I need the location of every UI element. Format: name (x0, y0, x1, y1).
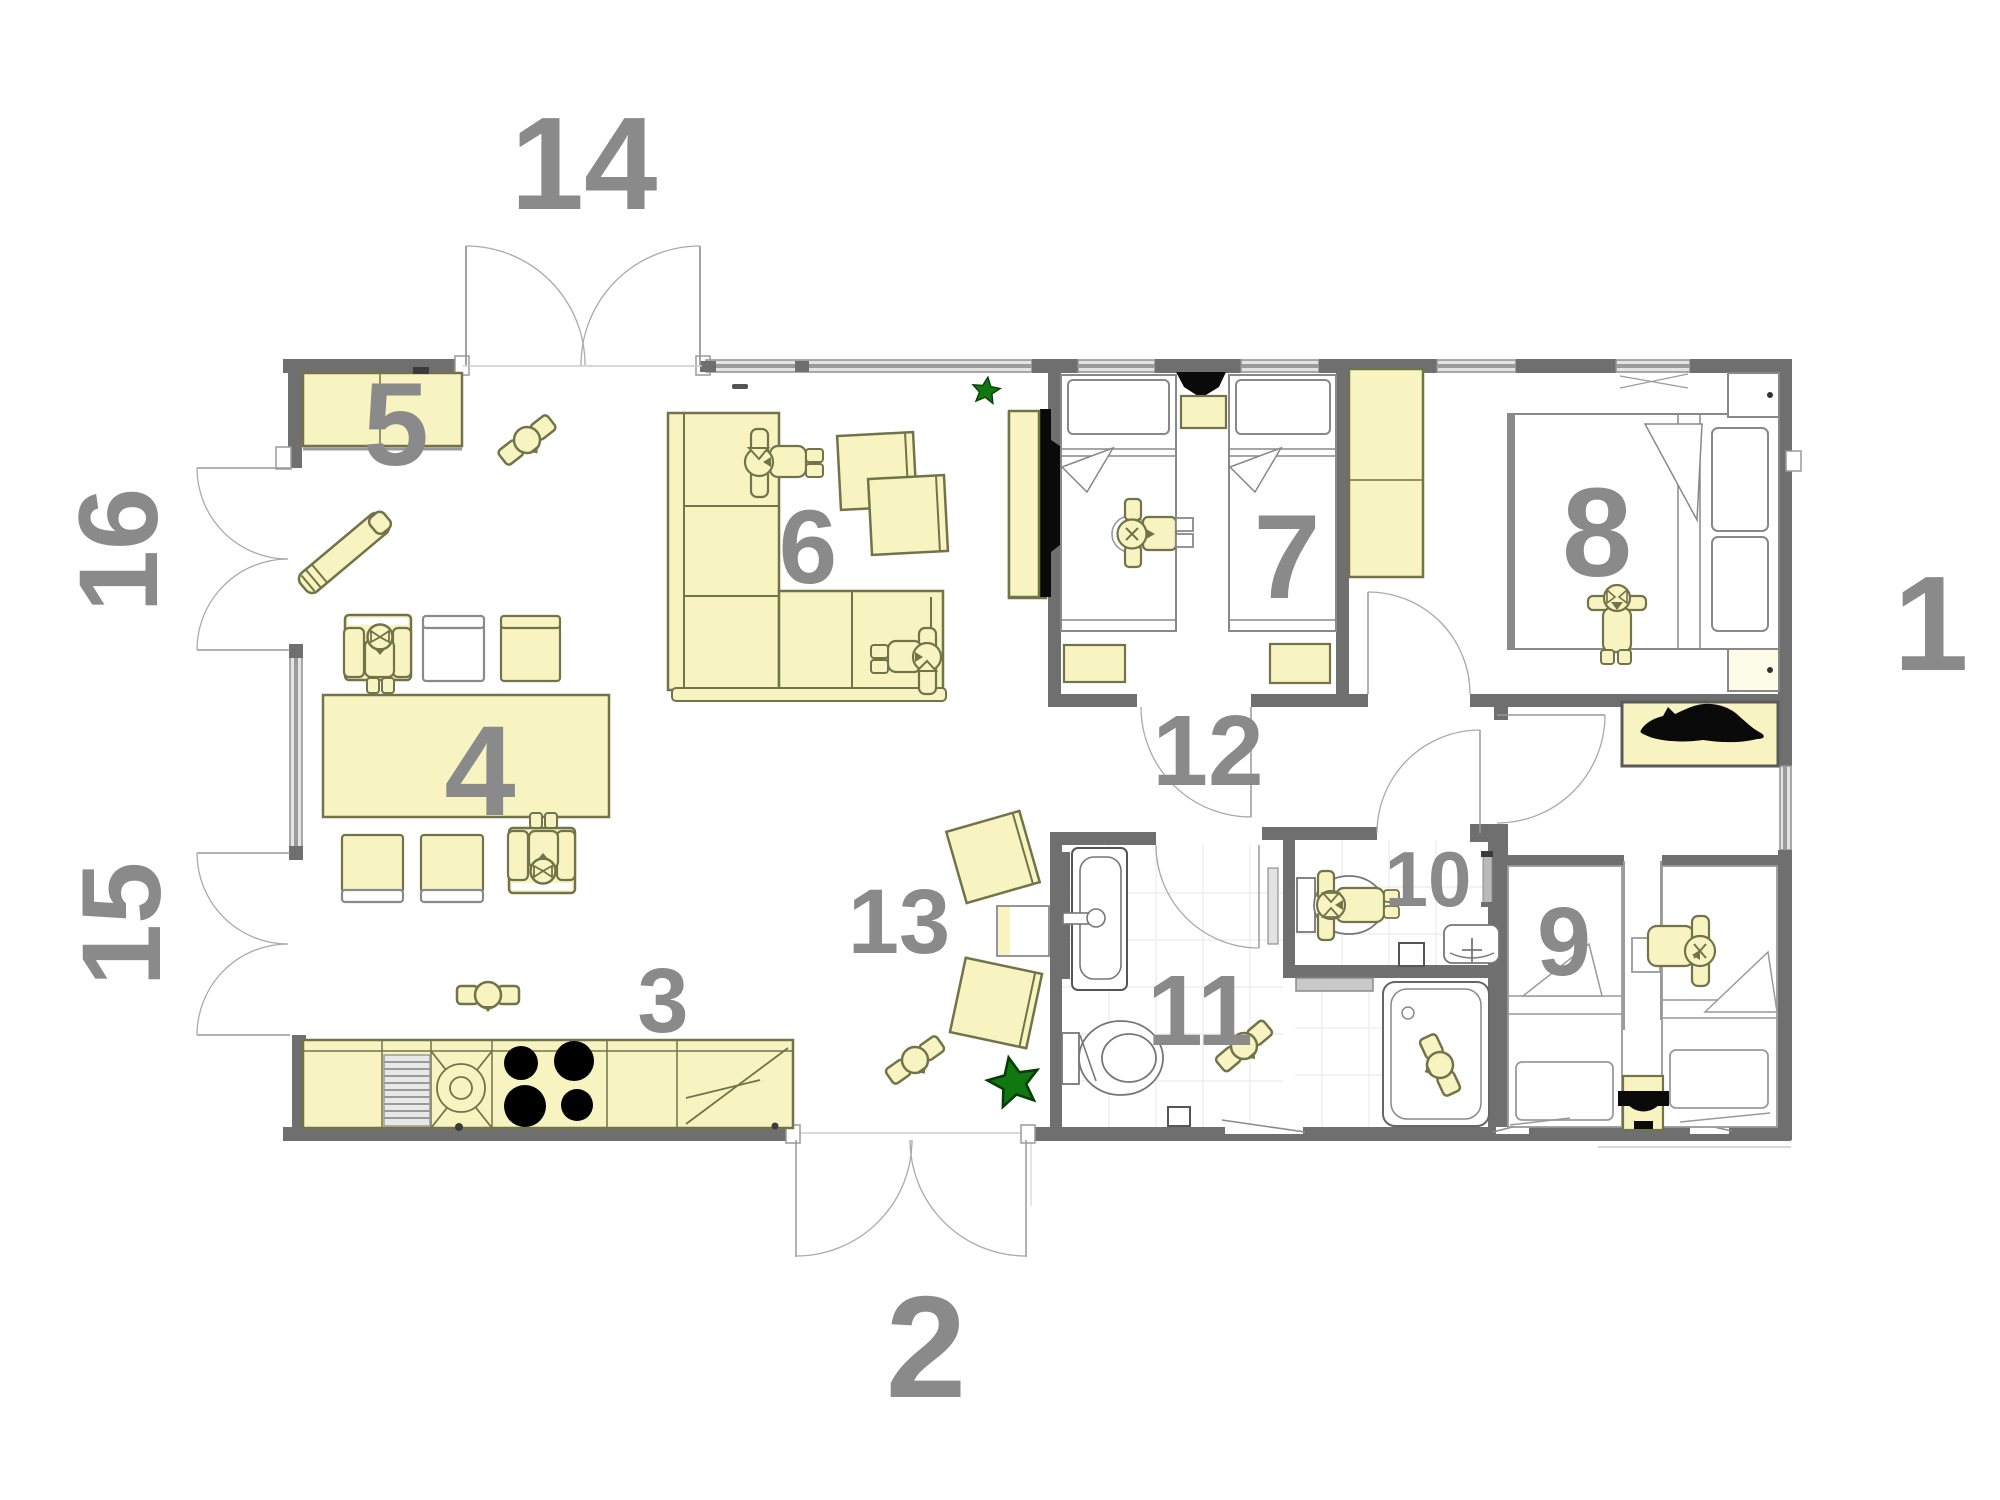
svg-text:8: 8 (1562, 462, 1632, 603)
svg-text:5: 5 (363, 359, 429, 491)
svg-text:14: 14 (511, 90, 658, 237)
svg-text:4: 4 (444, 700, 515, 843)
svg-text:10: 10 (1385, 835, 1472, 923)
svg-text:3: 3 (637, 950, 688, 1052)
svg-text:12: 12 (1152, 695, 1263, 807)
svg-text:15: 15 (59, 862, 184, 987)
svg-text:7: 7 (1254, 490, 1321, 624)
svg-text:6: 6 (779, 489, 837, 606)
svg-text:13: 13 (848, 871, 950, 973)
svg-text:11: 11 (1147, 955, 1253, 1067)
svg-text:9: 9 (1537, 887, 1591, 996)
svg-text:1: 1 (1893, 548, 1968, 699)
svg-text:2: 2 (886, 1266, 967, 1428)
svg-text:16: 16 (56, 488, 181, 613)
